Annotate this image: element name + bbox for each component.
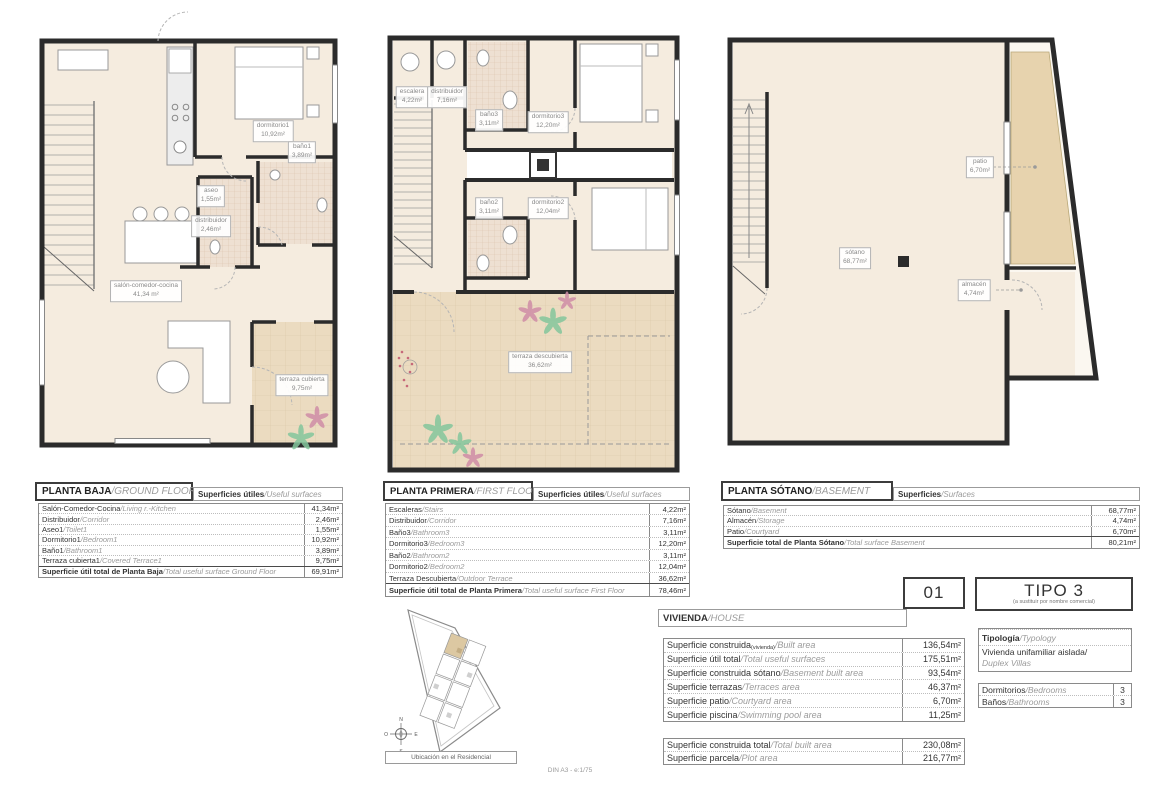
table-row: Superficie construida sótano/Basement bu… xyxy=(664,666,964,680)
table-row: Superficie construida(vivienda)/Built ar… xyxy=(664,639,964,652)
table-row: Almacén/Storage 4,74m² xyxy=(724,515,1139,525)
room-label-dormitorio1: dormitorio1 10,92m² xyxy=(253,120,294,142)
storage-area xyxy=(1007,272,1075,376)
basement-table-header: Superficies/Surfaces xyxy=(893,487,1140,501)
leader-dot xyxy=(1019,288,1023,292)
room-label-bano2: baño2 3,11m² xyxy=(475,197,503,219)
unit-number-box: 01 xyxy=(903,577,965,609)
table-total-row: Superficie total de Planta Sótano/Total … xyxy=(724,536,1139,548)
table-row: Escaleras/Stairs 4,22m² xyxy=(386,504,689,514)
room-label-salon: salón-comedor-cocina 41,34 m² xyxy=(110,280,182,302)
room-label-dormitorio3: dormitorio3 12,20m² xyxy=(528,111,569,133)
ground-floor-plan xyxy=(30,5,345,470)
table-row: Superficie piscina/Swimming pool area 11… xyxy=(664,707,964,721)
typology-header-row: Tipología/Typology xyxy=(979,629,1131,645)
room-label-distribuidor-pb: distribuidor 2,46m² xyxy=(191,215,231,237)
table-total-row: Superficie útil total de Planta Primera/… xyxy=(386,583,689,596)
totals-table: Superficie construida total/Total built … xyxy=(663,738,965,765)
compass-o: O xyxy=(384,732,388,738)
table-row: Dormitorio1/Bedroom1 10,92m² xyxy=(39,534,342,544)
room-label-bano1: baño1 3,89m² xyxy=(288,141,316,163)
site-outline xyxy=(408,610,500,752)
plan-sheet: salón-comedor-cocina 41,34 m² dormitorio… xyxy=(0,0,1170,785)
basement-plan xyxy=(715,30,1145,450)
table-rows: Dormitorios/Bedrooms 3 Baños/Bathrooms 3 xyxy=(979,684,1131,707)
table-row: Dormitorios/Bedrooms 3 xyxy=(979,684,1131,695)
compass-icon: N S E O xyxy=(384,717,418,755)
typology-table: Tipología/Typology Vivienda unifamiliar … xyxy=(978,628,1132,672)
room-label-sotano: sótano 68,77m² xyxy=(839,247,871,269)
table-rows: Sótano/Basement 68,77m² Almacén/Storage … xyxy=(724,506,1139,536)
vivienda-table: Superficie construida(vivienda)/Built ar… xyxy=(663,638,965,722)
leader-dot xyxy=(1033,165,1037,169)
table-rows: Escaleras/Stairs 4,22m² Distribuidor/Cor… xyxy=(386,504,689,583)
room-label-aseo: aseo 1,55m² xyxy=(197,185,225,207)
room-label-dormitorio2: dormitorio2 12,04m² xyxy=(528,197,569,219)
vivienda-title: VIVIENDA/HOUSE xyxy=(658,609,907,627)
table-row: Distribuidor/Corridor 2,46m² xyxy=(39,513,342,523)
table-row: Salón-Comedor-Cocina/Living r.-Kitchen 4… xyxy=(39,504,342,513)
basement-table-title: PLANTA SÓTANO/BASEMENT xyxy=(721,481,893,501)
room-label-escalera: escalera 4,22m² xyxy=(396,86,429,108)
ground-surfaces-table: Salón-Comedor-Cocina/Living r.-Kitchen 4… xyxy=(38,503,343,578)
table-row: Superficie patio/Courtyard area 6,70m² xyxy=(664,693,964,707)
table-row: Dormitorio3/Bedroom3 12,20m² xyxy=(386,537,689,548)
first-table-header: Superficies útiles/Useful surfaces xyxy=(533,487,690,501)
storage-door-opening xyxy=(1003,280,1012,310)
room-label-terraza-cubierta: terraza cubierta 9,75m² xyxy=(275,374,328,396)
table-row: Distribuidor/Corridor 7,16m² xyxy=(386,514,689,525)
first-surfaces-table: Escaleras/Stairs 4,22m² Distribuidor/Cor… xyxy=(385,503,690,597)
table-row: Superficie parcela/Plot area 216,77m² xyxy=(664,751,964,764)
table-row: Baño1/Bathroom1 3,89m² xyxy=(39,545,342,555)
table-row: Superficie terrazas/Terraces area 46,37m… xyxy=(664,679,964,693)
table-row: Baño3/Bathroom3 3,11m² xyxy=(386,526,689,537)
room-label-terraza-descubierta: terraza descubierta 36,62m² xyxy=(508,351,572,373)
ground-table-title: PLANTA BAJA/GROUND FLOOR xyxy=(35,482,193,501)
table-row: Baños/Bathrooms 3 xyxy=(979,695,1131,707)
table-row: Aseo1/Toilet1 1,55m² xyxy=(39,524,342,534)
compass-n: N xyxy=(399,717,403,723)
table-row: Terraza Descubierta/Outdoor Terrace 36,6… xyxy=(386,572,689,583)
table-row: Dormitorio2/Bedroom2 12,04m² xyxy=(386,560,689,571)
rooms-count-table: Dormitorios/Bedrooms 3 Baños/Bathrooms 3 xyxy=(978,683,1132,708)
room-label-bano3: baño3 3,11m² xyxy=(475,109,503,131)
compass-e: E xyxy=(414,732,418,738)
table-rows: Superficie construida(vivienda)/Built ar… xyxy=(664,639,964,721)
typology-value-row: Vivienda unifamiliar aislada/ Duplex Vil… xyxy=(979,645,1131,671)
ground-table-header: Superficies útiles/Useful surfaces xyxy=(193,487,343,501)
table-total-row: Superficie útil total de Planta Baja/Tot… xyxy=(39,566,342,578)
room-label-patio: patio 6,70m² xyxy=(966,156,994,178)
table-row: Baño2/Bathroom2 3,11m² xyxy=(386,549,689,560)
site-caption: Ubicación en el Residencial xyxy=(385,751,517,764)
table-row: Superficie útil total/Total useful surfa… xyxy=(664,652,964,666)
basement-surfaces-table: Sótano/Basement 68,77m² Almacén/Storage … xyxy=(723,505,1140,549)
table-row: Patio/Courtyard 6,70m² xyxy=(724,526,1139,536)
table-row: Sótano/Basement 68,77m² xyxy=(724,506,1139,515)
first-table-title: PLANTA PRIMERA/FIRST FLOOR xyxy=(383,481,533,501)
sheet-scale-note: DIN A3 - e:1/75 xyxy=(505,767,635,774)
chimney-core xyxy=(537,159,549,171)
room-label-almacen: almacén 4,74m² xyxy=(958,279,991,301)
site-location-map: N S E O xyxy=(383,596,558,768)
table-row: Terraza cubierta1/Covered Terrace1 9,75m… xyxy=(39,555,342,565)
type-box: TIPO 3 (a sustituir por nombre comercial… xyxy=(975,577,1133,611)
table-row: Superficie construida total/Total built … xyxy=(664,739,964,751)
room-label-distribuidor-p1: distribuidor 7,16m² xyxy=(427,86,467,108)
stair-void xyxy=(467,152,672,178)
table-rows: Superficie construida total/Total built … xyxy=(664,739,964,764)
table-rows: Salón-Comedor-Cocina/Living r.-Kitchen 4… xyxy=(39,504,342,566)
pillar xyxy=(898,256,909,267)
